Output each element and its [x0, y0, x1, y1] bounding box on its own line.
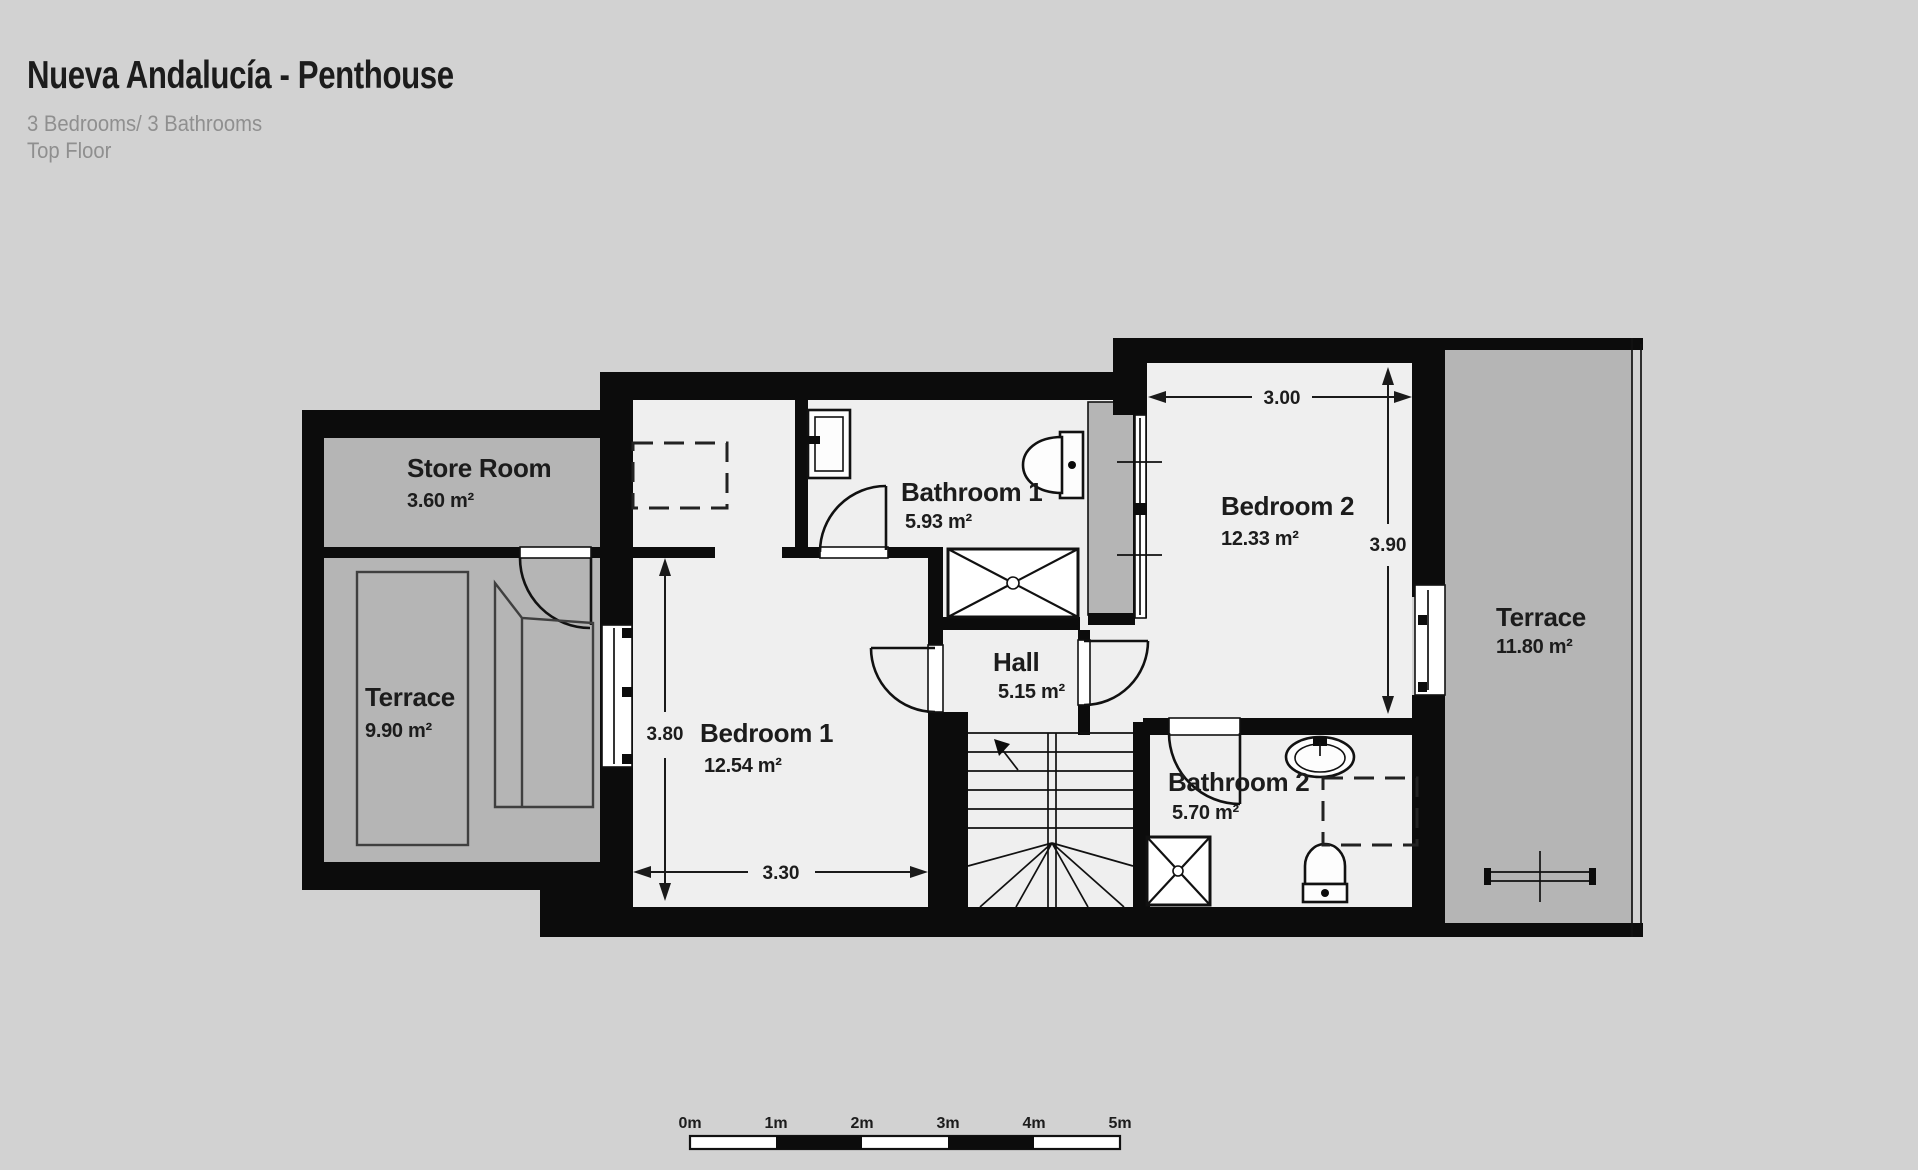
- plan-title: Nueva Andalucía - Penthouse: [27, 56, 454, 97]
- room-label-bedroom-2: Bedroom 2: [1221, 491, 1354, 521]
- scale-label-0m: 0m: [678, 1115, 701, 1132]
- room-area-bathroom-2: 5.70 m²: [1172, 802, 1239, 824]
- scale-label-4m: 4m: [1022, 1115, 1045, 1132]
- scale-bar: 0m 1m 2m 3m 4m 5m: [678, 1115, 1131, 1149]
- scale-label-2m: 2m: [850, 1115, 873, 1132]
- dim-bedroom-1-width: 3.30: [763, 863, 800, 884]
- room-area-terrace-right: 11.80 m²: [1496, 636, 1573, 658]
- scale-bar-track: [690, 1136, 1120, 1149]
- room-area-bedroom-1: 12.54 m²: [704, 755, 782, 777]
- room-area-store-room: 3.60 m²: [407, 490, 474, 512]
- room-label-store-room: Store Room: [407, 453, 551, 483]
- shower-bathroom-2: [1147, 837, 1210, 905]
- toilet-bathroom-2: [1303, 844, 1347, 902]
- scale-bar-segment-3-4: [948, 1136, 1034, 1149]
- room-area-terrace-left: 9.90 m²: [365, 720, 432, 742]
- room-label-bedroom-1: Bedroom 1: [700, 718, 833, 748]
- plan-header: Nueva Andalucía - Penthouse 3 Bedrooms/ …: [27, 56, 560, 165]
- plan-subtitle: 3 Bedrooms/ 3 Bathrooms: [27, 110, 518, 138]
- dim-bedroom-2-depth: 3.90: [1370, 535, 1407, 556]
- room-area-hall: 5.15 m²: [998, 681, 1065, 703]
- room-area-bedroom-2: 12.33 m²: [1221, 528, 1299, 550]
- scale-bar-segment-1-2: [776, 1136, 862, 1149]
- floor-plan-drawing: 3.80 3.30 3.00 3.90 Store Room 3.60 m² T: [0, 0, 1918, 1170]
- room-area-bathroom-1: 5.93 m²: [905, 511, 972, 533]
- scale-label-5m: 5m: [1108, 1115, 1131, 1132]
- scale-label-1m: 1m: [764, 1115, 787, 1132]
- dim-bedroom-1-depth: 3.80: [647, 724, 684, 745]
- dim-bedroom-2-width: 3.00: [1264, 388, 1301, 409]
- main-floor-right: [1113, 363, 1412, 907]
- terrace-right-railing: [1632, 338, 1641, 937]
- sink-bathroom-1: [800, 410, 850, 478]
- window-bedroom-1: [602, 625, 632, 767]
- plan-floor-label: Top Floor: [27, 137, 518, 165]
- scale-label-3m: 3m: [936, 1115, 959, 1132]
- room-label-bathroom-1: Bathroom 1: [901, 477, 1042, 507]
- room-label-terrace-left: Terrace: [365, 682, 455, 712]
- duct-shaft: [1088, 402, 1135, 615]
- room-label-hall: Hall: [993, 647, 1039, 677]
- room-label-bathroom-2: Bathroom 2: [1168, 767, 1309, 797]
- window-bedroom-2-terrace: [1415, 585, 1445, 695]
- room-label-terrace-right: Terrace: [1496, 602, 1586, 632]
- shower-bathroom-1: [948, 549, 1078, 617]
